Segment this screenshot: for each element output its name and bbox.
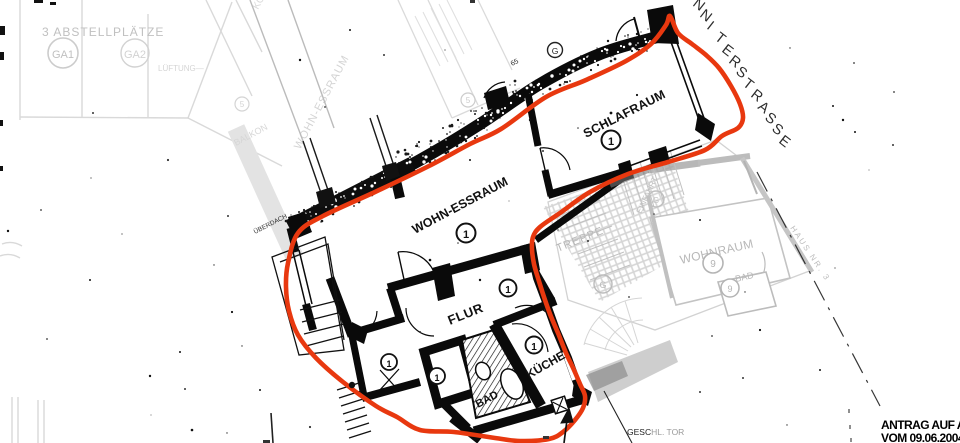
svg-text:3 ABSTELLPLÄTZE: 3 ABSTELLPLÄTZE xyxy=(42,25,164,39)
svg-text:G: G xyxy=(552,46,559,56)
svg-text:GESCHL. TOR: GESCHL. TOR xyxy=(627,427,684,437)
svg-text:1: 1 xyxy=(531,342,537,353)
svg-text:1: 1 xyxy=(434,373,439,383)
svg-text:G: G xyxy=(653,196,659,205)
svg-text:1: 1 xyxy=(386,359,391,369)
svg-text:1: 1 xyxy=(505,285,511,296)
svg-text:G: G xyxy=(599,280,606,290)
svg-text:ANTRAG AUF AB: ANTRAG AUF AB xyxy=(881,418,960,432)
svg-text:9: 9 xyxy=(727,284,732,294)
svg-text:1: 1 xyxy=(608,136,614,148)
svg-text:5: 5 xyxy=(466,96,471,105)
svg-text:GA1: GA1 xyxy=(52,49,74,61)
svg-text:VOM 09.06.2004: VOM 09.06.2004 xyxy=(881,431,960,443)
svg-text:1: 1 xyxy=(463,229,469,241)
svg-text:5: 5 xyxy=(240,100,245,109)
svg-text:GA2: GA2 xyxy=(124,49,146,61)
svg-text:9: 9 xyxy=(710,259,716,270)
svg-text:LÜFTUNG—: LÜFTUNG— xyxy=(158,64,204,73)
